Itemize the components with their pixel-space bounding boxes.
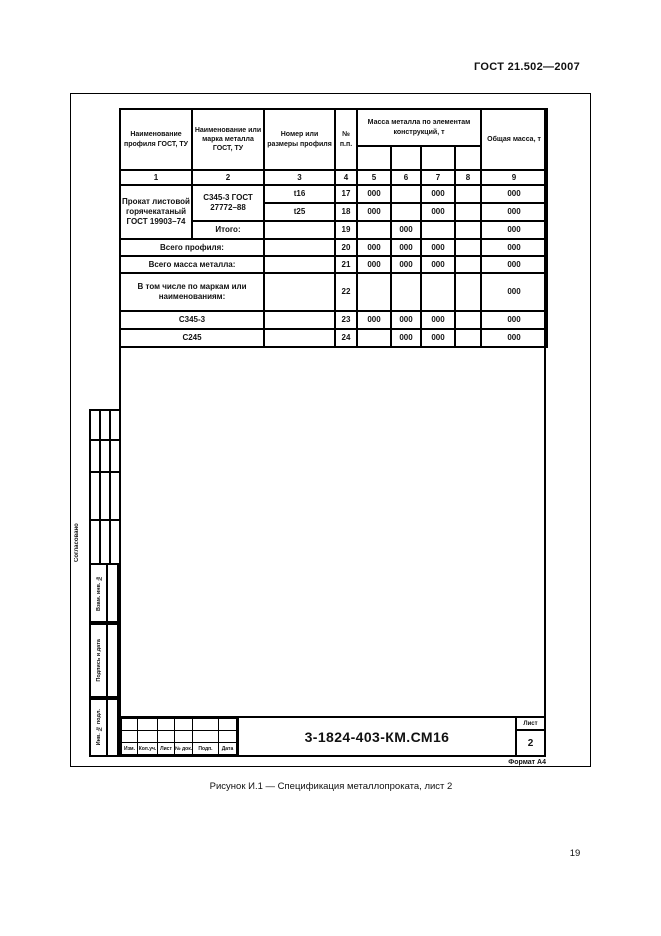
approval-cell — [100, 520, 110, 564]
cell-size — [264, 329, 335, 347]
mass-subcell — [357, 146, 391, 170]
cell-total: 000 — [481, 239, 547, 256]
sheet-number: 2 — [517, 731, 544, 755]
mass-subcell — [421, 146, 455, 170]
revision-cell — [175, 731, 193, 743]
cell-num: 18 — [335, 203, 357, 221]
cell-num: 19 — [335, 221, 357, 239]
document-page: ГОСТ 21.502—2007 Согласовано Взам. инв. … — [0, 0, 661, 936]
sheet-number-box: Лист 2 — [517, 718, 544, 755]
cell-total: 000 — [481, 311, 547, 329]
revision-label: Лист — [158, 743, 175, 755]
sheet-a4: Согласовано Взам. инв. № Подпись и дата … — [70, 93, 591, 767]
approval-grid — [89, 409, 121, 565]
revision-grid: Изм. Кол.уч. Лист № док. Подп. Дата — [121, 718, 237, 755]
margin-stamp-soglasovano: Согласовано — [74, 496, 80, 562]
revision-cell — [193, 719, 219, 731]
cell-num: 17 — [335, 185, 357, 203]
cell-num: 24 — [335, 329, 357, 347]
cell-mass — [455, 311, 481, 329]
cell-mass — [357, 329, 391, 347]
cell-mass: 000 — [391, 256, 421, 273]
cell-row-label: С245 — [120, 329, 264, 347]
col-number: 7 — [421, 170, 455, 185]
col-header-num: № п.п. — [335, 109, 357, 170]
approval-cell — [90, 440, 100, 472]
col-header-profile: Наименование профиля ГОСТ, ТУ — [120, 109, 192, 170]
col-header-size: Номер или размеры профиля — [264, 109, 335, 170]
cell-mass — [455, 185, 481, 203]
cell-size: t25 — [264, 203, 335, 221]
cell-total: 000 — [481, 203, 547, 221]
margin-stamp-vzam-inv: Взам. инв. № — [89, 563, 119, 623]
cell-num: 20 — [335, 239, 357, 256]
cell-size: t16 — [264, 185, 335, 203]
cell-mass: 000 — [421, 185, 455, 203]
col-number: 4 — [335, 170, 357, 185]
cell-mass — [455, 239, 481, 256]
stamp-value-box — [108, 700, 117, 755]
cell-total: 000 — [481, 329, 547, 347]
cell-row-label: Всего масса металла: — [120, 256, 264, 273]
stamp-label-box: Взам. инв. № — [91, 565, 108, 621]
cell-mass: 000 — [421, 329, 455, 347]
cell-mass — [455, 329, 481, 347]
format-note: Формат А4 — [71, 759, 546, 766]
cell-mass — [391, 273, 421, 311]
cell-row-label: В том числе по маркам или наименованиям: — [120, 273, 264, 311]
cell-total: 000 — [481, 256, 547, 273]
approval-cell — [90, 472, 100, 520]
col-header-total: Общая масса, т — [481, 109, 547, 170]
cell-mass: 000 — [357, 203, 391, 221]
cell-size — [264, 273, 335, 311]
cell-total: 000 — [481, 185, 547, 203]
stamp-value-box — [108, 565, 117, 621]
revision-cell — [122, 731, 138, 743]
cell-num: 21 — [335, 256, 357, 273]
figure-caption: Рисунок И.1 — Спецификация металлопрокат… — [70, 781, 592, 792]
revision-cell — [219, 719, 237, 731]
col-number: 6 — [391, 170, 421, 185]
cell-mass: 000 — [391, 239, 421, 256]
cell-mass: 000 — [357, 185, 391, 203]
cell-mass — [455, 256, 481, 273]
cell-mass — [421, 273, 455, 311]
revision-label: Дата — [219, 743, 237, 755]
spec-table: Наименование профиля ГОСТ, ТУ Наименован… — [119, 108, 548, 348]
cell-mass: 000 — [357, 239, 391, 256]
cell-row-label: Всего профиля: — [120, 239, 264, 256]
cell-mass: 000 — [391, 221, 421, 239]
cell-profile: Прокат листовой горячекатаный ГОСТ 19903… — [120, 185, 192, 239]
cell-size — [264, 311, 335, 329]
col-number: 3 — [264, 170, 335, 185]
stamp-value-box — [108, 625, 117, 696]
stamp-label: Взам. инв. № — [96, 575, 102, 611]
margin-stamp-podpis-data: Подпись и дата — [89, 623, 119, 698]
col-header-grade: Наименование или марка металла ГОСТ, ТУ — [192, 109, 264, 170]
cell-mass: 000 — [421, 256, 455, 273]
revision-cell — [138, 719, 158, 731]
stamp-label-box: Инв. № подл. — [91, 700, 108, 755]
mass-subcell — [455, 146, 481, 170]
revision-cell — [158, 719, 175, 731]
cell-mass — [357, 273, 391, 311]
cell-num: 23 — [335, 311, 357, 329]
margin-stamp-inv-podl: Инв. № подл. — [89, 698, 119, 757]
cell-mass — [391, 185, 421, 203]
approval-cell — [100, 472, 110, 520]
approval-cell — [100, 440, 110, 472]
revision-label: Подп. — [193, 743, 219, 755]
col-number: 1 — [120, 170, 192, 185]
cell-mass: 000 — [357, 311, 391, 329]
stamp-label: Инв. № подл. — [96, 709, 102, 745]
cell-mass: 000 — [391, 329, 421, 347]
cell-total: 000 — [481, 221, 547, 239]
cell-mass: 000 — [391, 311, 421, 329]
cell-mass: 000 — [357, 256, 391, 273]
revision-cell — [138, 731, 158, 743]
cell-size — [264, 239, 335, 256]
sheet-label: Лист — [517, 718, 544, 731]
col-number: 2 — [192, 170, 264, 185]
revision-label: Кол.уч. — [138, 743, 158, 755]
approval-cell — [90, 520, 100, 564]
cell-size — [264, 256, 335, 273]
standard-reference: ГОСТ 21.502—2007 — [300, 61, 580, 73]
col-header-mass-group: Масса металла по элементам конструкций, … — [357, 109, 481, 146]
cell-grade: С345-3 ГОСТ 27772–88 — [192, 185, 264, 221]
revision-label: Изм. — [122, 743, 138, 755]
doc-number: 3-1824-403-КМ.СМ16 — [237, 718, 517, 755]
cell-mass — [421, 221, 455, 239]
cell-num: 22 — [335, 273, 357, 311]
stamp-label: Подпись и дата — [96, 639, 102, 682]
approval-cell — [100, 410, 110, 440]
revision-cell — [122, 719, 138, 731]
col-number: 9 — [481, 170, 547, 185]
cell-mass — [455, 273, 481, 311]
cell-mass: 000 — [421, 311, 455, 329]
cell-mass — [455, 221, 481, 239]
stamp-label-box: Подпись и дата — [91, 625, 108, 696]
cell-size — [264, 221, 335, 239]
page-number: 19 — [558, 848, 592, 859]
cell-mass — [357, 221, 391, 239]
revision-cell — [193, 731, 219, 743]
title-block: Изм. Кол.уч. Лист № док. Подп. Дата 3-18… — [119, 716, 546, 757]
col-number: 5 — [357, 170, 391, 185]
col-number: 8 — [455, 170, 481, 185]
approval-cell — [90, 410, 100, 440]
cell-mass: 000 — [421, 203, 455, 221]
revision-cell — [219, 731, 237, 743]
revision-label: № док. — [175, 743, 193, 755]
cell-itogo: Итого: — [192, 221, 264, 239]
revision-cell — [158, 731, 175, 743]
cell-row-label: С345-3 — [120, 311, 264, 329]
mass-subcell — [391, 146, 421, 170]
revision-cell — [175, 719, 193, 731]
cell-mass: 000 — [421, 239, 455, 256]
cell-mass — [391, 203, 421, 221]
cell-total: 000 — [481, 273, 547, 311]
cell-mass — [455, 203, 481, 221]
